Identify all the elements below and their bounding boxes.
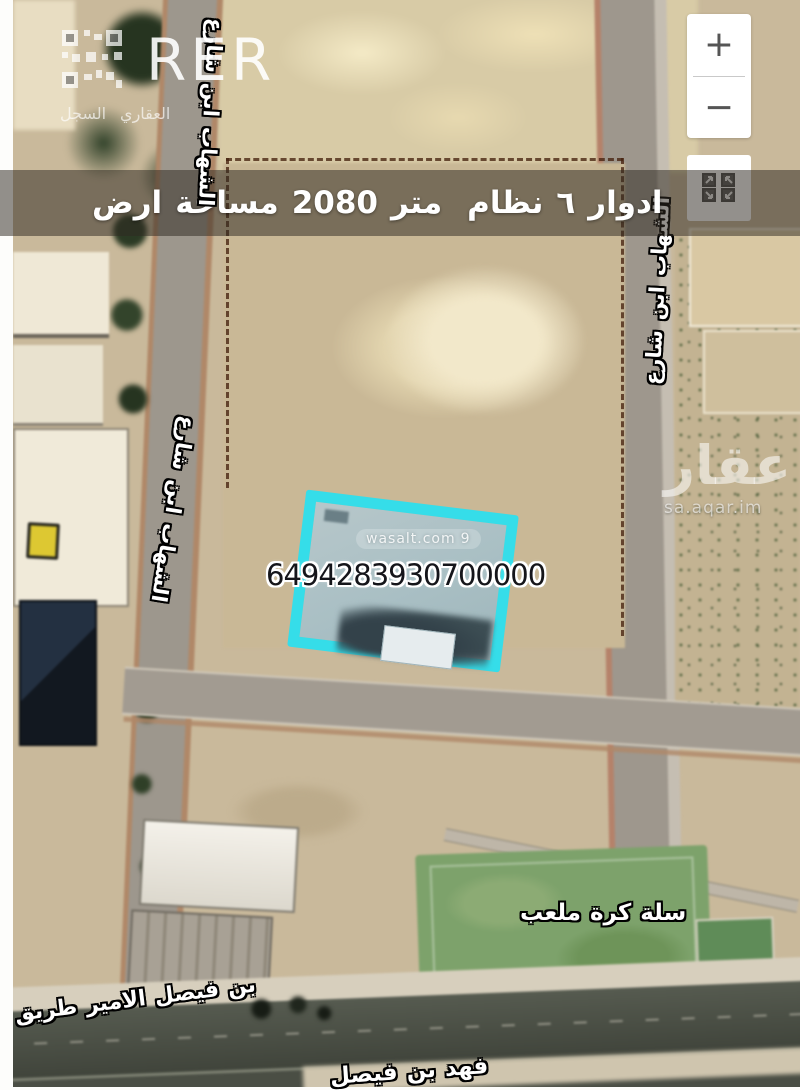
label-word: ملعب [520, 900, 581, 926]
map-region-compound [13, 428, 129, 607]
road-center-line [13, 1012, 800, 1046]
map-region-building [703, 330, 800, 414]
logo-subtitle-word: العقاري [120, 104, 170, 123]
aqar-logo-watermark: عقار [664, 434, 791, 497]
map-region-sand-mound [388, 268, 583, 413]
map-region-yellow-vehicle [26, 522, 60, 560]
banner-word: ارض [92, 185, 162, 221]
zoom-in-button[interactable]: + [687, 14, 751, 76]
street-word: ابن [644, 285, 670, 320]
map-region-building [689, 228, 800, 327]
banner-word: متر [391, 185, 442, 221]
brand-text: RER [146, 26, 275, 94]
label-word: فيصل [329, 1059, 398, 1090]
tree-shadow-smudge [235, 988, 340, 1030]
listing-info-banner: ارض مساحة 2080 متر نظام ٦ ادوار [0, 170, 800, 236]
basketball-court-label: ملعب كرة سلة [520, 900, 686, 926]
banner-word: ٦ [556, 185, 575, 221]
street-word: شارع [640, 329, 667, 385]
listing-map-page: { "logo": { "brand": "RER", "subtitle": … [0, 0, 800, 1087]
logo-subtitle: السجل العقاري [60, 104, 310, 123]
map-region-building [13, 345, 103, 426]
wasalt-watermark: wasalt.com 9 [356, 529, 481, 549]
logo-subtitle-word: السجل [60, 104, 106, 123]
street-word: الشهاب [194, 126, 222, 206]
parcel-number-label: 6494283930700000 [266, 558, 545, 592]
map-region-dark-building [19, 600, 97, 746]
parcel-detail [324, 509, 349, 524]
banner-word: نظام [467, 185, 543, 221]
label-word: سلة [640, 900, 686, 926]
qr-code-icon [62, 30, 122, 88]
banner-word: 2080 [292, 185, 378, 221]
zoom-out-button[interactable]: − [687, 77, 751, 139]
zoom-control-panel: + − [687, 14, 751, 138]
lot-boundary-dashed-top [226, 158, 623, 161]
banner-text: ارض مساحة 2080 متر نظام ٦ ادوار [0, 185, 663, 221]
map-region-warehouse [139, 819, 299, 913]
pin-icon: 9 [461, 531, 471, 547]
label-word: بن [406, 1057, 437, 1085]
banner-word: ادوار [588, 185, 662, 221]
aqar-domain-watermark: sa.aqar.im [664, 498, 762, 518]
label-word: كرة [590, 900, 631, 926]
map-region-building [13, 252, 109, 338]
banner-word: مساحة [175, 185, 279, 221]
wasalt-domain-text: wasalt.com [366, 531, 456, 547]
label-word: فهد [444, 1053, 489, 1082]
